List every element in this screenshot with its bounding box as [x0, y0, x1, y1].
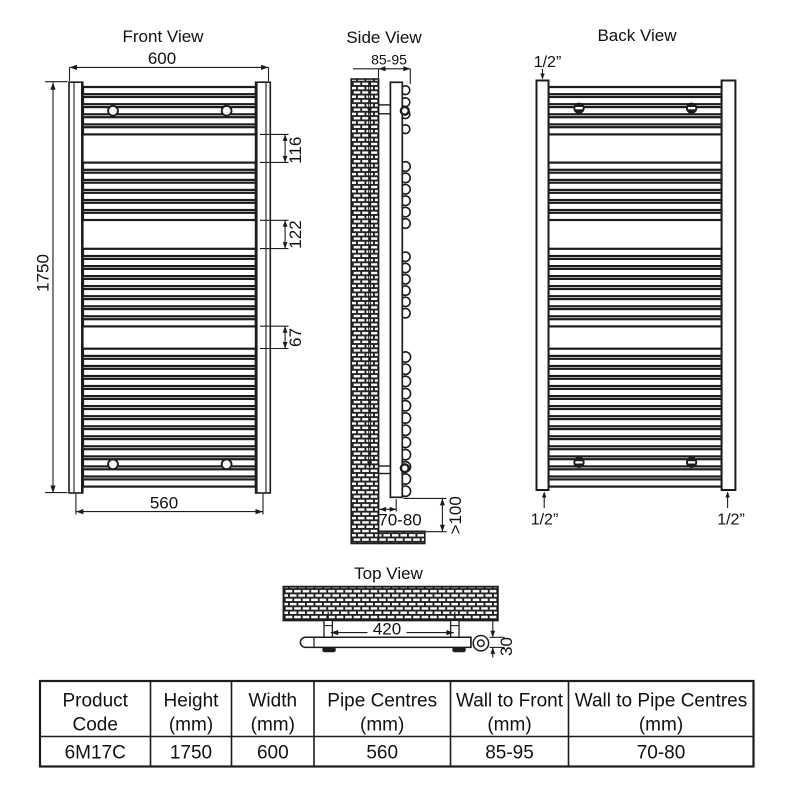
svg-text:(mm): (mm): [639, 715, 683, 736]
svg-text:67: 67: [286, 328, 305, 347]
svg-text:(mm): (mm): [360, 715, 404, 736]
svg-text:Height: Height: [164, 691, 220, 712]
svg-text:6M17C: 6M17C: [65, 743, 126, 764]
svg-text:1/2”: 1/2”: [534, 54, 562, 71]
svg-text:85-95: 85-95: [371, 52, 407, 68]
svg-text:420: 420: [373, 620, 401, 639]
svg-text:85-95: 85-95: [485, 743, 534, 764]
svg-text:600: 600: [148, 49, 176, 68]
svg-text:Side View: Side View: [346, 28, 422, 47]
svg-text:(mm): (mm): [169, 715, 213, 736]
svg-text:>100: >100: [446, 496, 465, 534]
svg-text:Front View: Front View: [123, 27, 205, 46]
svg-text:(mm): (mm): [251, 715, 295, 736]
svg-text:116: 116: [286, 137, 305, 164]
svg-text:30: 30: [497, 637, 516, 656]
svg-text:560: 560: [366, 743, 398, 764]
svg-text:Pipe Centres: Pipe Centres: [327, 691, 437, 712]
svg-text:600: 600: [257, 743, 289, 764]
svg-text:1/2”: 1/2”: [531, 512, 559, 529]
svg-text:Back View: Back View: [597, 26, 677, 45]
svg-text:Wall to Pipe Centres: Wall to Pipe Centres: [575, 691, 747, 712]
svg-text:Top View: Top View: [354, 564, 423, 583]
svg-text:560: 560: [150, 494, 178, 513]
svg-text:Wall to Front: Wall to Front: [456, 691, 564, 712]
svg-text:70-80: 70-80: [637, 743, 686, 764]
svg-text:1750: 1750: [170, 743, 212, 764]
svg-text:(mm): (mm): [487, 715, 531, 736]
svg-text:122: 122: [286, 220, 305, 248]
svg-text:Product: Product: [62, 691, 128, 712]
svg-text:1750: 1750: [34, 254, 53, 292]
svg-text:1/2”: 1/2”: [717, 512, 745, 529]
svg-text:Code: Code: [72, 715, 117, 736]
svg-text:70-80: 70-80: [378, 511, 421, 530]
svg-text:Width: Width: [249, 691, 298, 712]
